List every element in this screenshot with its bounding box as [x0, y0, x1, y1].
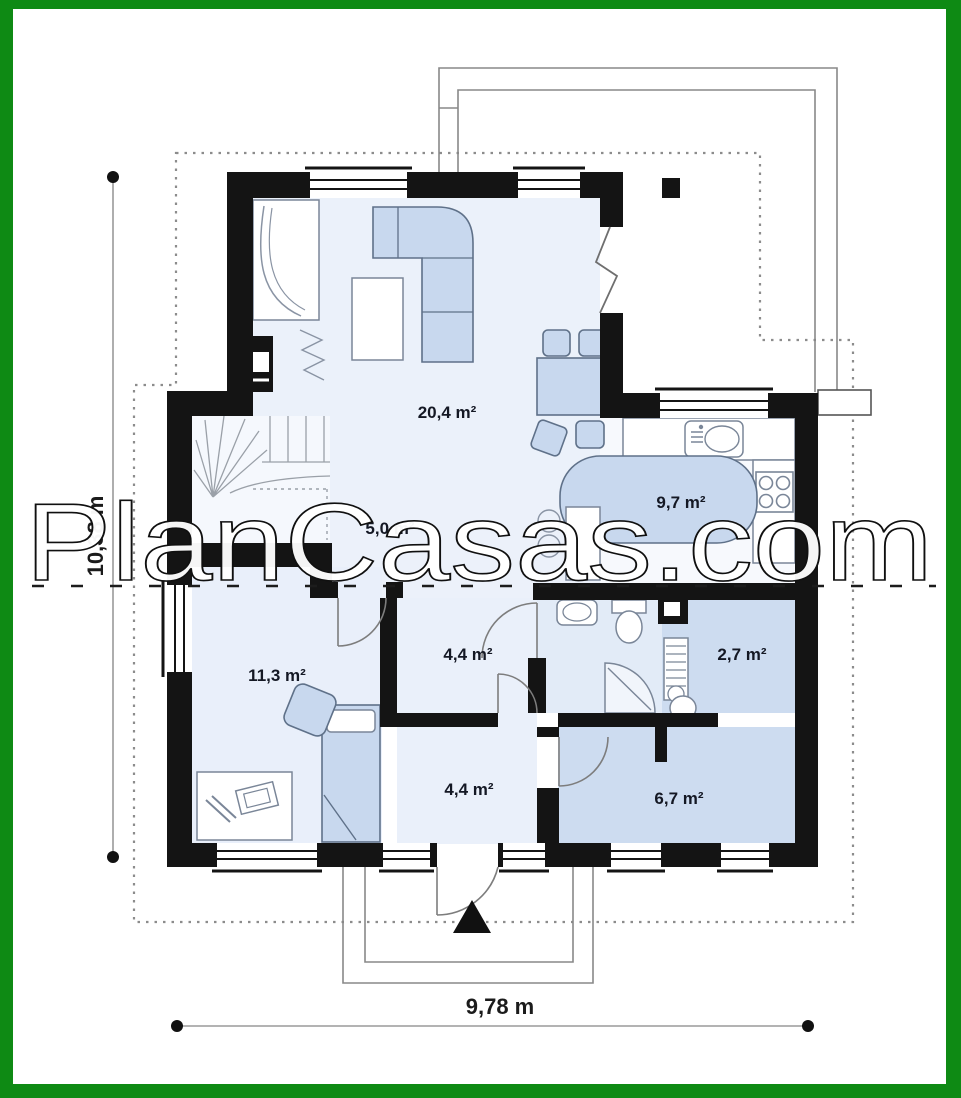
floor-utility: [558, 727, 795, 844]
window: [379, 843, 434, 871]
dimension-dot: [107, 851, 119, 863]
room-area-label-living: 20,4 m²: [418, 403, 477, 422]
window: [499, 843, 549, 871]
pillow: [327, 710, 375, 732]
room-area-label-hall-upper: 4,4 m²: [443, 645, 492, 664]
window: [717, 843, 773, 871]
watermark: PlanCasas.com: [25, 481, 936, 604]
window: [607, 843, 665, 871]
vent-box: [818, 390, 871, 415]
frame-top: [0, 0, 961, 9]
room-area-label-bedroom: 11,3 m²: [248, 666, 306, 685]
coffee-table: [352, 278, 403, 360]
chimney: [662, 178, 680, 198]
dimension-width-label: 9,78 m: [466, 994, 535, 1019]
watermark-text: PlanCasas.com: [25, 481, 933, 604]
window: [212, 843, 322, 871]
dining-chair: [543, 330, 570, 356]
floor-plan-drawing: 20,4 m² 9,7 m² 5,0 m² 4,4 m² 11,3 m² 2,7…: [0, 0, 961, 1098]
frame-right: [946, 0, 961, 1098]
window: [305, 168, 412, 198]
room-area-label-utility: 6,7 m²: [654, 789, 703, 808]
room-area-label-wc: 2,7 m²: [717, 645, 766, 664]
window: [655, 389, 773, 418]
frame-bottom: [0, 1084, 961, 1098]
dimension-dot: [171, 1020, 183, 1032]
dining-chair: [576, 421, 604, 448]
fireplace: [249, 336, 273, 392]
dimension-dot: [802, 1020, 814, 1032]
frame-left: [0, 0, 13, 1098]
toilet-bowl: [616, 611, 642, 643]
wall-vent: [664, 602, 680, 616]
room-area-label-hall-lower: 4,4 m²: [444, 780, 493, 799]
kitchen-sink: [685, 421, 743, 457]
window: [513, 168, 585, 198]
floor-plan-page: 20,4 m² 9,7 m² 5,0 m² 4,4 m² 11,3 m² 2,7…: [0, 0, 961, 1098]
dimension-dot: [107, 171, 119, 183]
